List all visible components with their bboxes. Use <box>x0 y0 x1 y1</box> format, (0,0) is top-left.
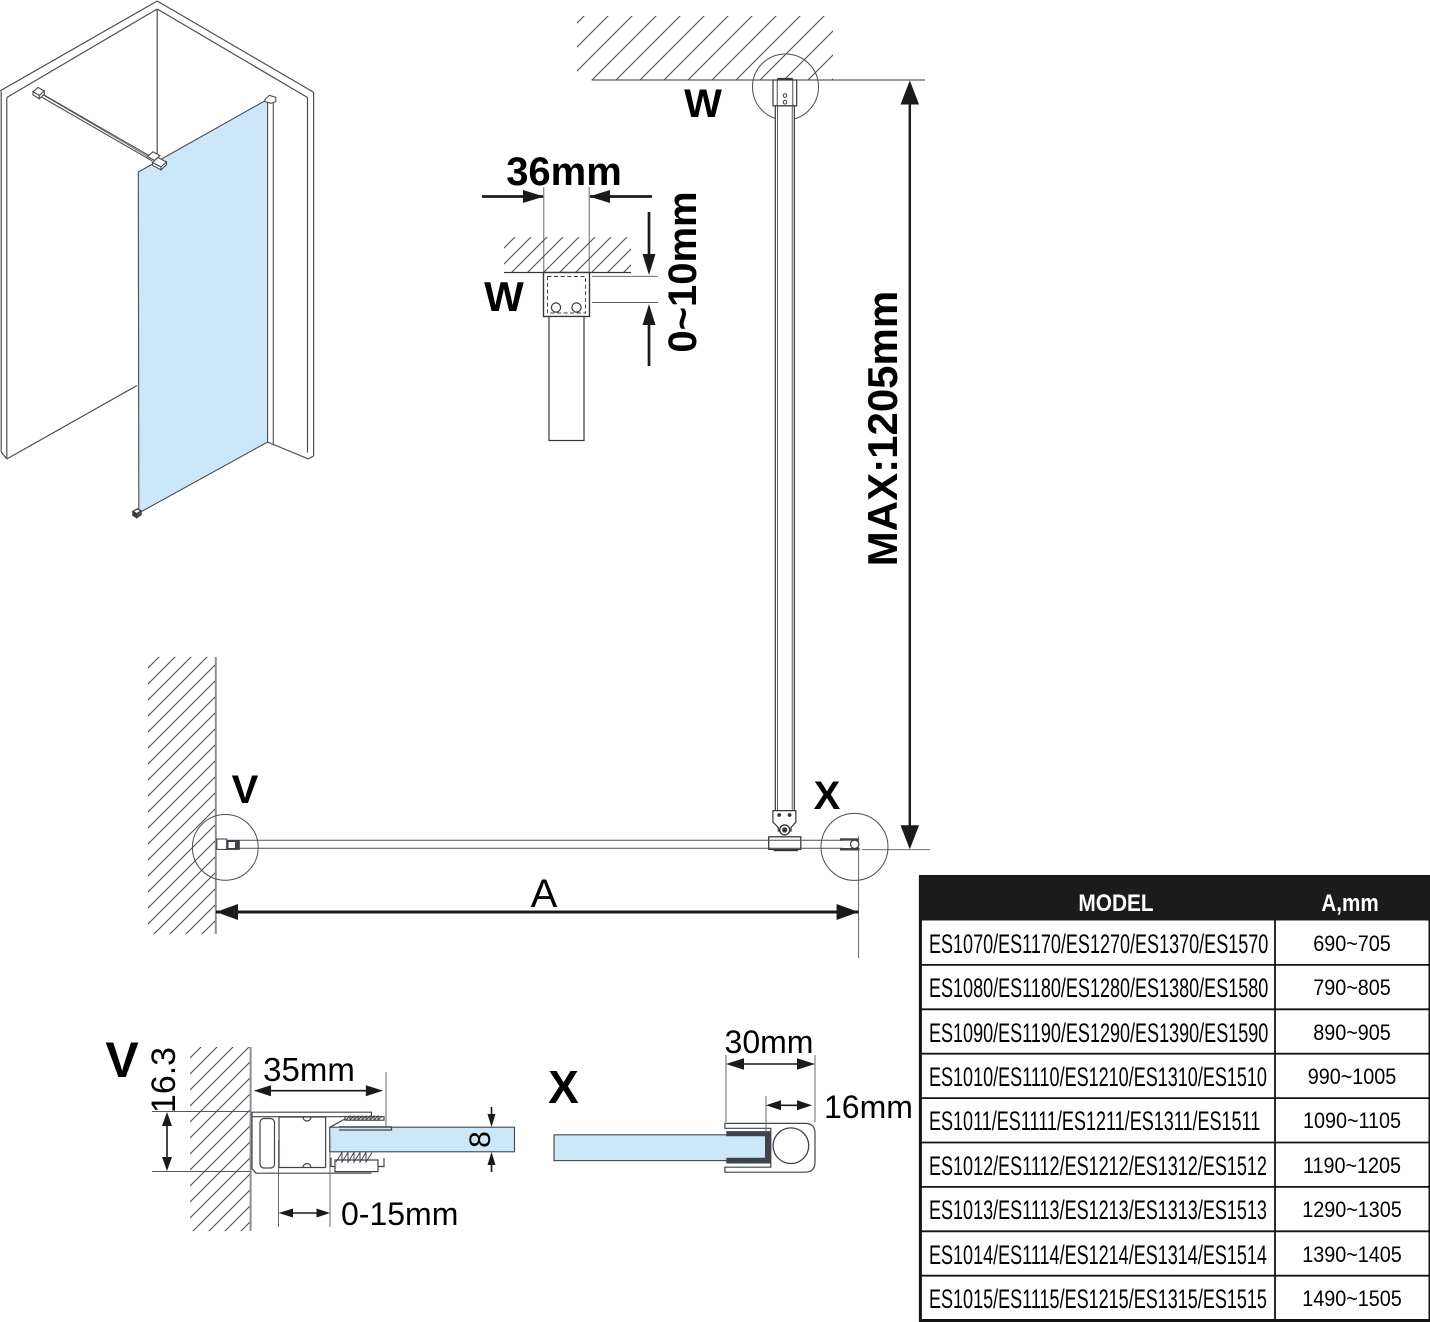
svg-text:ES1011/ES1111/ES1211/ES1311/ES: ES1011/ES1111/ES1211/ES1311/ES1511 <box>929 1105 1260 1136</box>
svg-text:ES1070/ES1170/ES1270/ES1370/ES: ES1070/ES1170/ES1270/ES1370/ES1570 <box>929 928 1268 959</box>
svg-text:30mm: 30mm <box>725 1024 814 1060</box>
svg-text:790~805: 790~805 <box>1313 976 1391 1000</box>
svg-text:W: W <box>484 273 524 320</box>
svg-text:8: 8 <box>464 1131 497 1148</box>
svg-text:0-15mm: 0-15mm <box>341 1196 458 1232</box>
svg-text:0~10mm: 0~10mm <box>661 191 705 352</box>
svg-text:X: X <box>814 774 841 818</box>
svg-text:ES1090/ES1190/ES1290/ES1390/ES: ES1090/ES1190/ES1290/ES1390/ES1590 <box>929 1017 1268 1048</box>
svg-text:V: V <box>105 1032 139 1088</box>
svg-text:ES1013/ES1113/ES1213/ES1313/ES: ES1013/ES1113/ES1213/ES1313/ES1513 <box>929 1194 1267 1225</box>
svg-text:890~905: 890~905 <box>1313 1021 1391 1045</box>
svg-text:1090~1105: 1090~1105 <box>1303 1109 1401 1133</box>
svg-text:V: V <box>232 768 259 812</box>
svg-text:ES1014/ES1114/ES1214/ES1314/ES: ES1014/ES1114/ES1214/ES1314/ES1514 <box>929 1239 1267 1270</box>
svg-text:W: W <box>684 82 722 126</box>
svg-text:A: A <box>531 872 558 916</box>
svg-text:990~1005: 990~1005 <box>1308 1065 1397 1089</box>
svg-text:ES1015/ES1115/ES1215/ES1315/ES: ES1015/ES1115/ES1215/ES1315/ES1515 <box>929 1283 1267 1314</box>
svg-text:1390~1405: 1390~1405 <box>1302 1243 1402 1267</box>
svg-text:X: X <box>548 1061 579 1113</box>
svg-text:690~705: 690~705 <box>1313 932 1391 956</box>
svg-text:ES1010/ES1110/ES1210/ES1310/ES: ES1010/ES1110/ES1210/ES1310/ES1510 <box>929 1061 1267 1092</box>
svg-text:16.3: 16.3 <box>145 1047 183 1113</box>
svg-text:ES1012/ES1112/ES1212/ES1312/ES: ES1012/ES1112/ES1212/ES1312/ES1512 <box>929 1150 1267 1181</box>
svg-text:MODEL: MODEL <box>1078 890 1154 917</box>
svg-text:16mm: 16mm <box>824 1089 913 1125</box>
svg-text:1490~1505: 1490~1505 <box>1302 1287 1402 1311</box>
svg-text:A,mm: A,mm <box>1321 890 1378 917</box>
svg-text:35mm: 35mm <box>263 1051 355 1088</box>
svg-text:ES1080/ES1180/ES1280/ES1380/ES: ES1080/ES1180/ES1280/ES1380/ES1580 <box>929 972 1268 1003</box>
svg-text:1190~1205: 1190~1205 <box>1303 1154 1401 1178</box>
svg-text:MAX:1205mm: MAX:1205mm <box>859 291 906 566</box>
svg-text:36mm: 36mm <box>506 150 622 194</box>
svg-text:1290~1305: 1290~1305 <box>1302 1198 1402 1222</box>
